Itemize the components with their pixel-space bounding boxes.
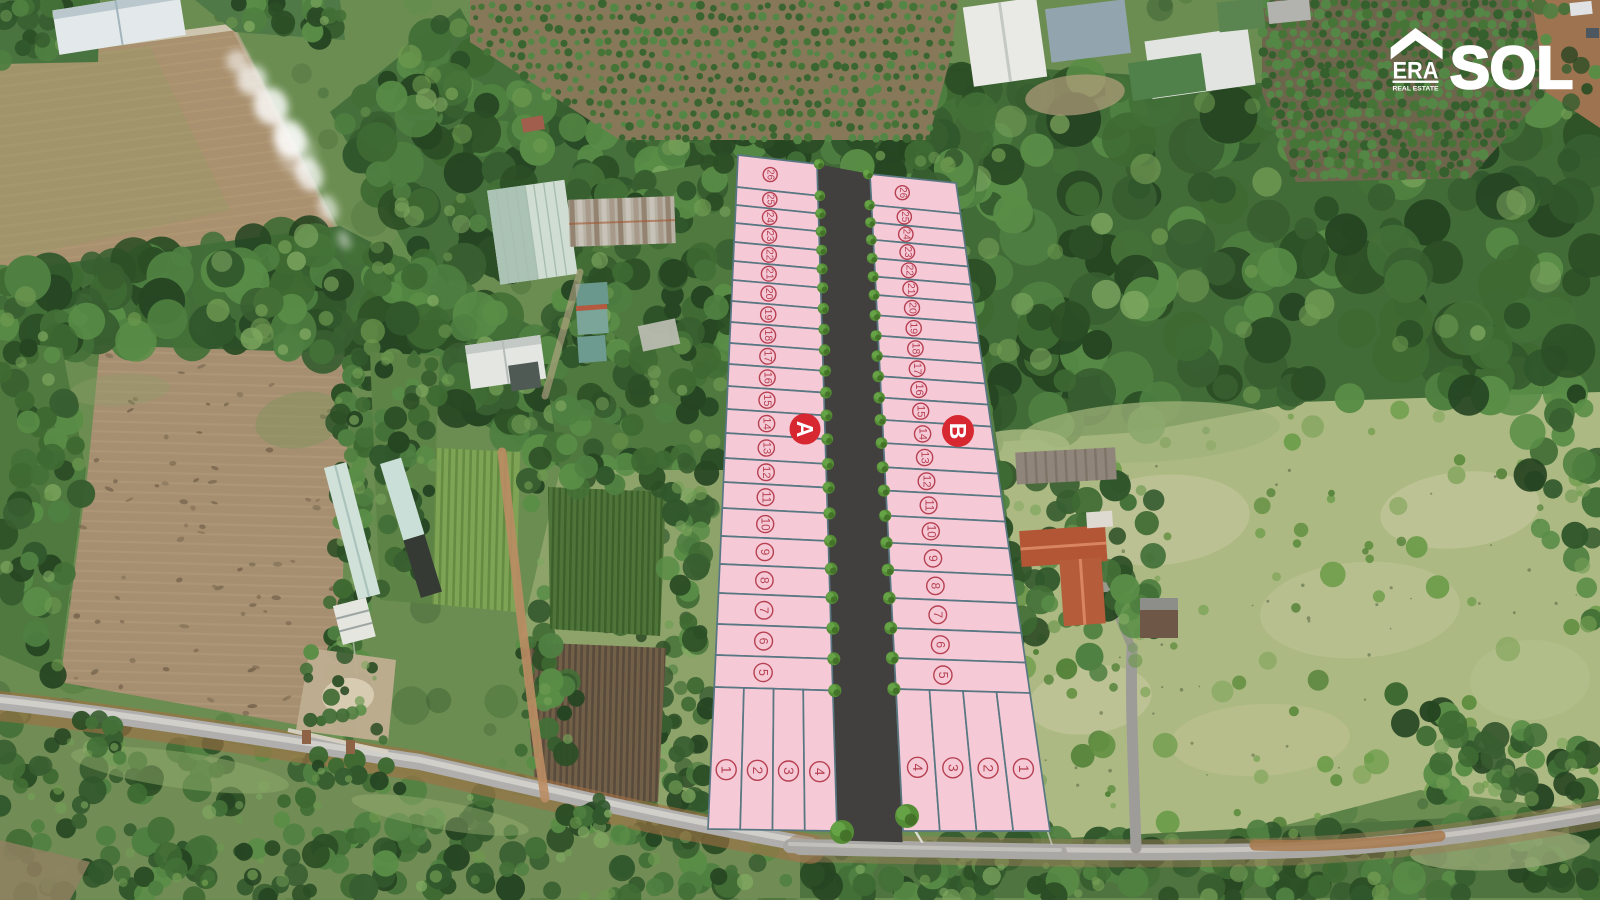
svg-text:SOL: SOL [1450, 35, 1573, 101]
svg-text:ERA: ERA [1393, 58, 1439, 85]
svg-text:REAL ESTATE: REAL ESTATE [1393, 87, 1439, 93]
